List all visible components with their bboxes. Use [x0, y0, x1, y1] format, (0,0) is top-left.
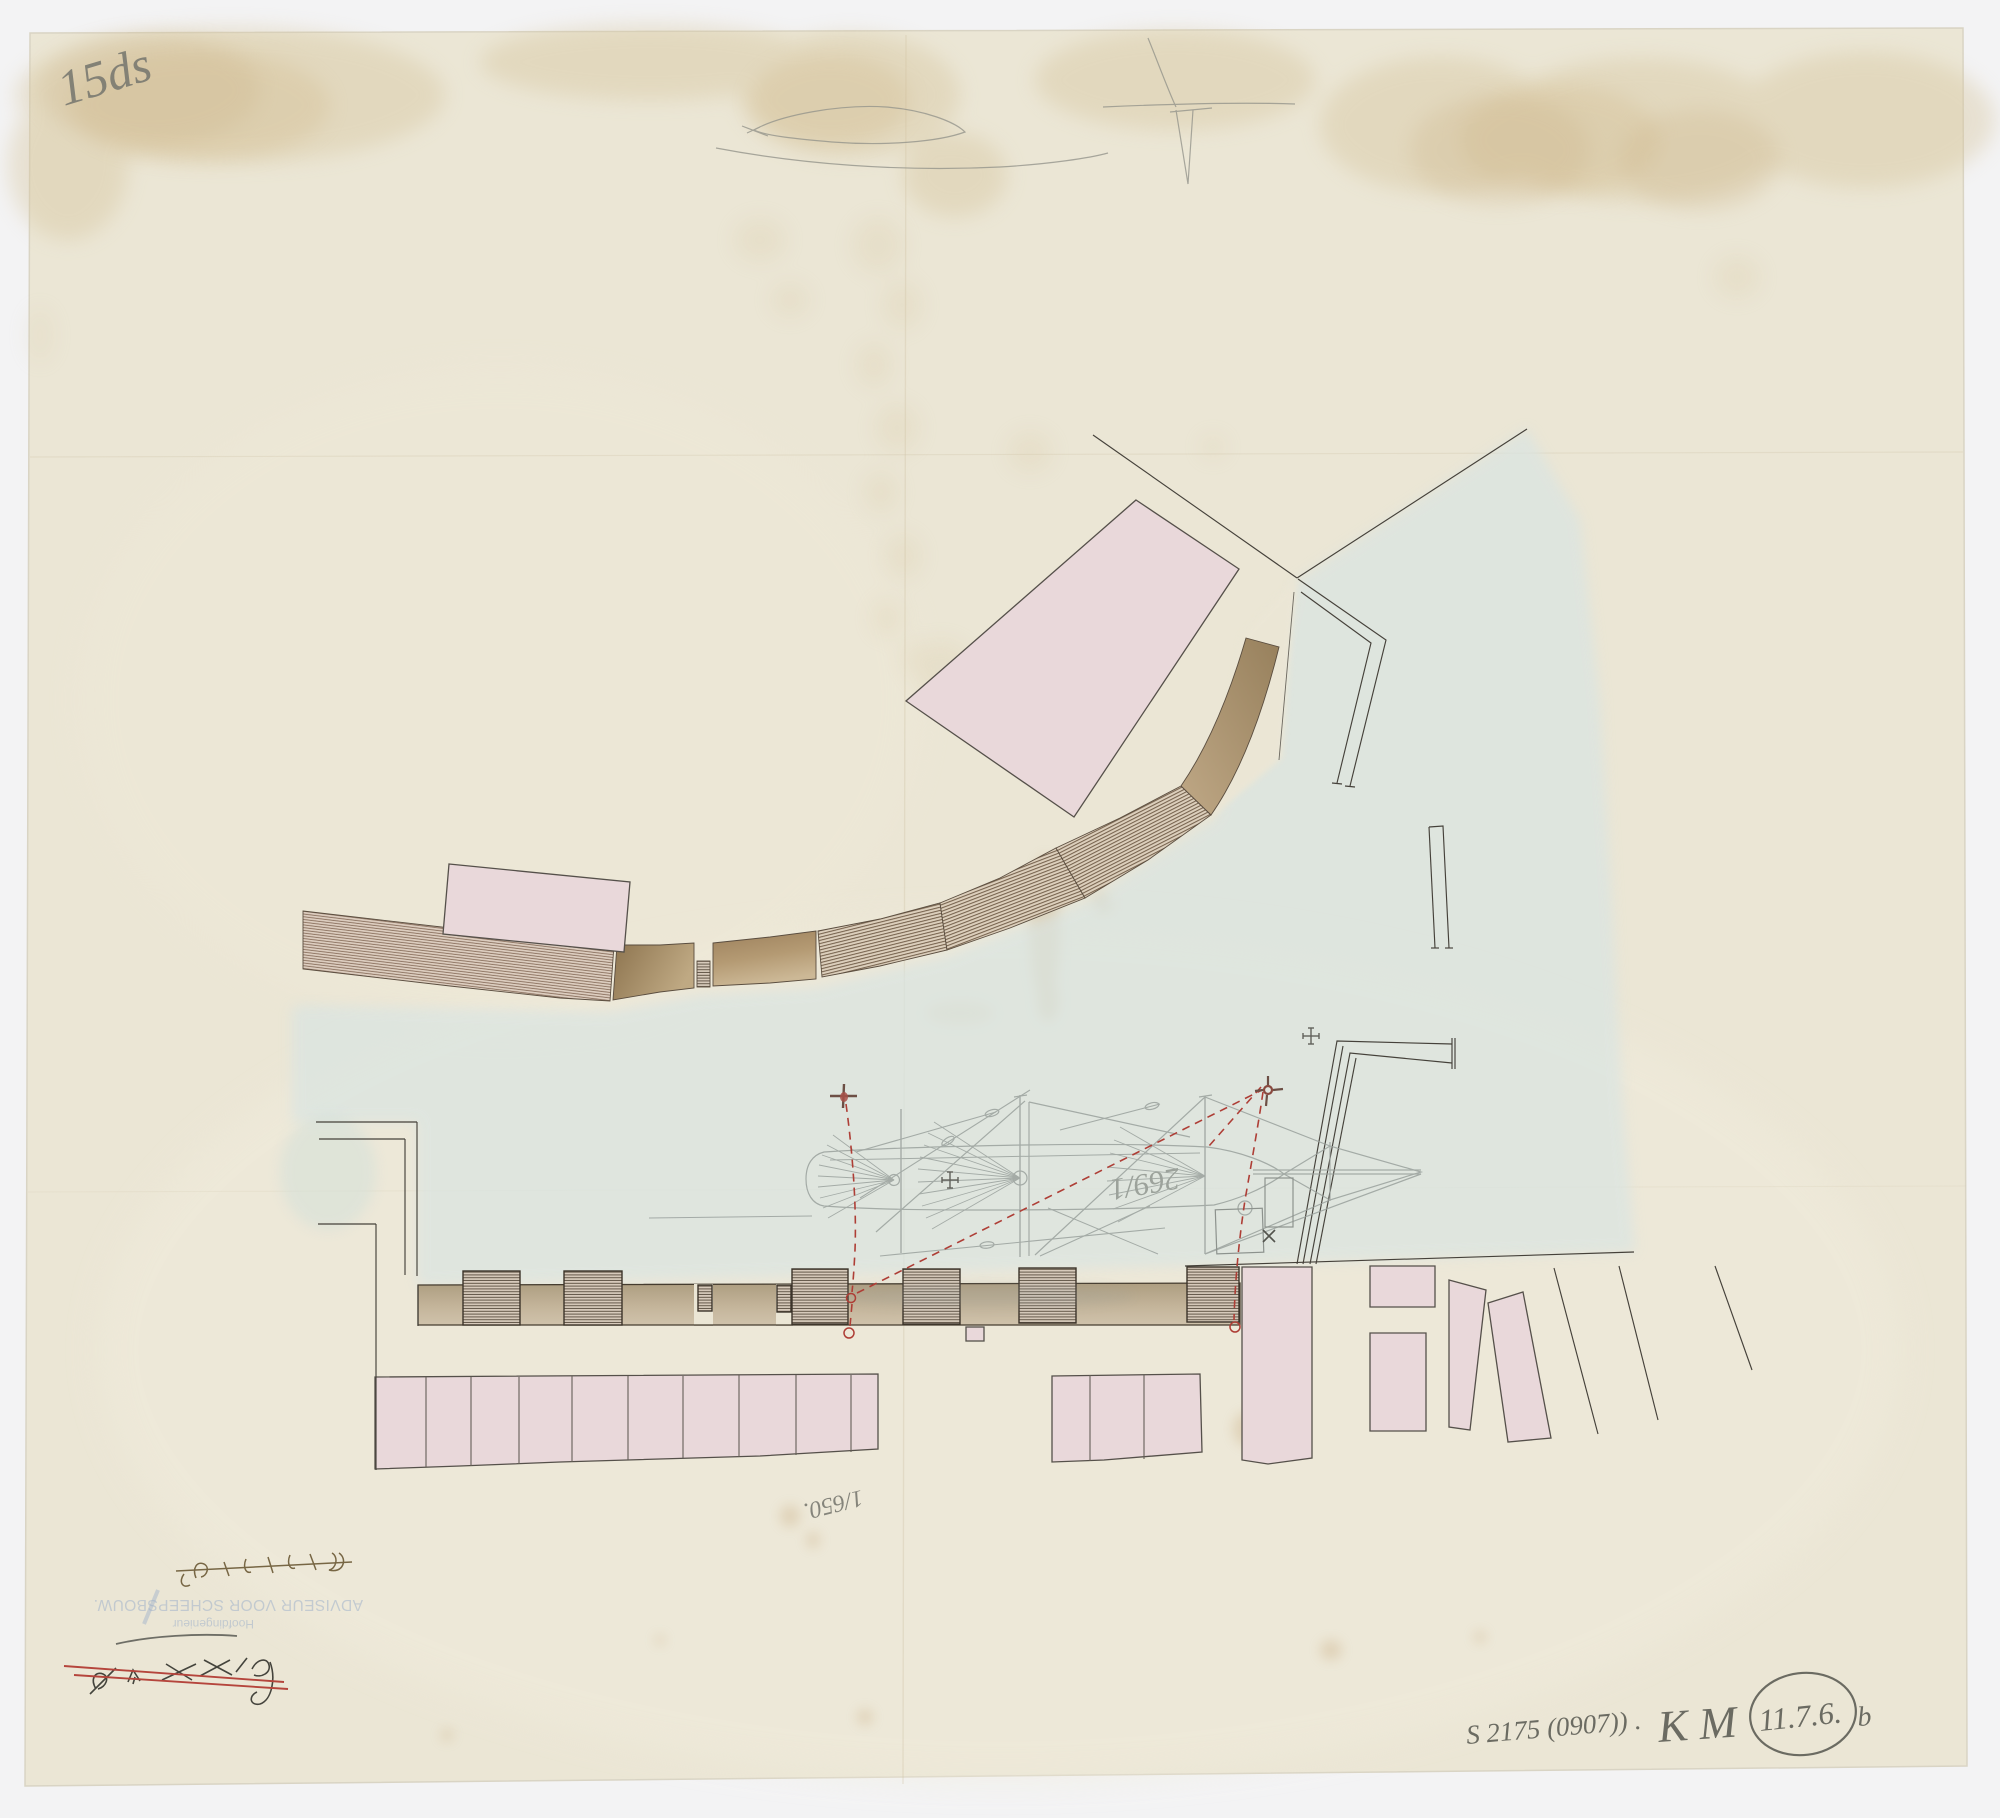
svg-text:Hoofdingenieur: Hoofdingenieur [173, 1617, 254, 1631]
svg-text:b: b [1856, 1701, 1872, 1733]
svg-text:ADVISEUR VOOR SCHEEPSBOUW.: ADVISEUR VOOR SCHEEPSBOUW. [93, 1596, 363, 1613]
svg-text:K M: K M [1655, 1696, 1741, 1752]
